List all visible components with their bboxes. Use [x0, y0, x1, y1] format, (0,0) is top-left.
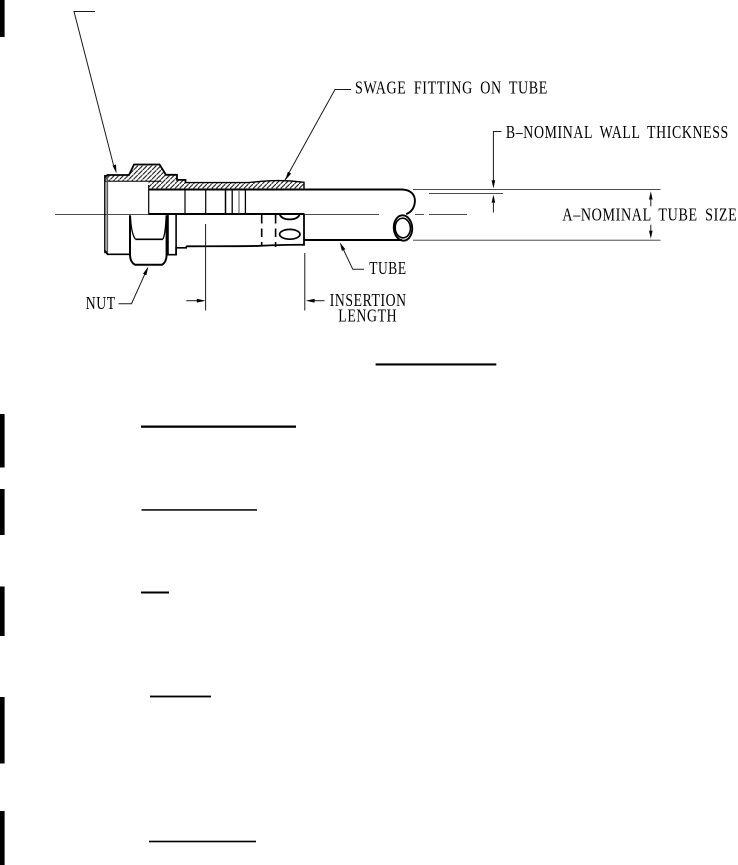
svg-text:SWAGE FITTING ON TUBE: SWAGE FITTING ON TUBE	[355, 77, 548, 97]
svg-text:B–NOMINAL WALL THICKNESS: B–NOMINAL WALL THICKNESS	[506, 122, 729, 142]
svg-text:A–NOMINAL TUBE SIZE: A–NOMINAL TUBE SIZE	[562, 204, 737, 224]
svg-text:LENGTH: LENGTH	[338, 306, 397, 326]
svg-text:TUBE: TUBE	[369, 258, 407, 278]
svg-text:NUT: NUT	[86, 293, 116, 313]
